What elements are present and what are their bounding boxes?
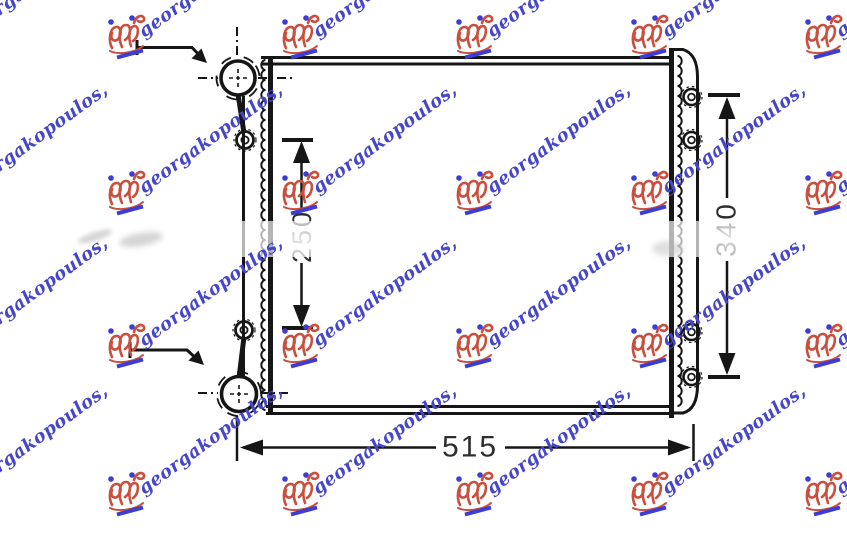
radiator-bottom-edge [266,407,672,414]
radiator-left-core-edge [261,57,270,415]
dimension-overall-width: 515 [237,416,694,464]
leader-arrow-bottom [130,342,204,365]
radiator-line-drawing: 250 340 515 [0,0,847,543]
dimension-label-515: 515 [442,431,498,464]
leader-arrow-top [137,40,207,63]
pipe-fitting-top [198,27,293,108]
radiator-diagram-image: 250 340 515 [0,0,847,543]
dimension-overall-height: 340 [708,95,742,377]
radiator-top-edge [261,58,674,65]
pipe-fitting-bottom [198,363,290,425]
dimension-core-height: 250 [282,140,317,328]
dimension-label-250: 250 [287,209,317,263]
dimension-label-340: 340 [711,201,742,257]
